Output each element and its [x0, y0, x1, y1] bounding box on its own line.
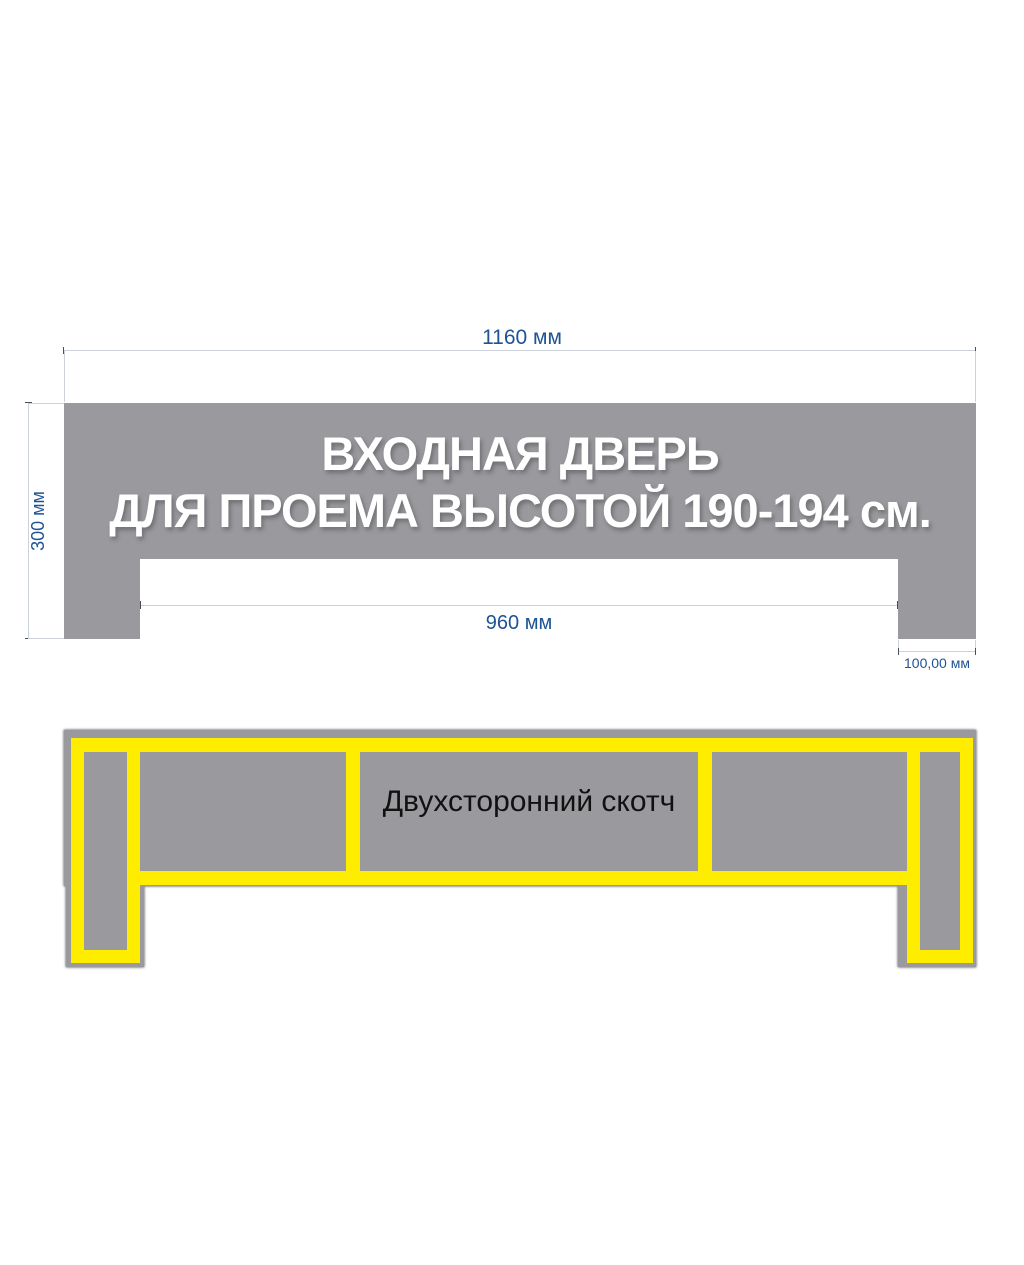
tape-strip-top-rail: [71, 738, 973, 752]
dim-label-leg-width: 100,00 мм: [877, 656, 997, 670]
dim-tick-leg-left: [898, 648, 899, 655]
panel-title-line1: ВХОДНАЯ ДВЕРЬ: [64, 427, 976, 481]
dim-line-height: [28, 403, 29, 639]
extension-line-height-bottom: [28, 638, 64, 639]
panel-right-leg: [898, 558, 976, 639]
panel-title-line2: ДЛЯ ПРОЕМА ВЫСОТОЙ 190-194 см.: [64, 484, 976, 538]
dim-tick-opening-left: [140, 601, 141, 609]
dim-tick-opening-right: [897, 601, 898, 609]
extension-line-right: [975, 351, 976, 402]
extension-line-height-top: [28, 403, 64, 404]
dim-label-total-width: 1160 мм: [372, 327, 672, 348]
tape-strip-right-inner: [907, 738, 920, 963]
dim-label-height: 300 мм: [27, 471, 49, 571]
tape-strip-right-leg-bottom: [907, 950, 973, 963]
tape-strip-divider-1: [346, 752, 360, 871]
dim-label-opening-width: 960 мм: [369, 613, 669, 633]
tape-strip-left-leg-bottom: [71, 950, 140, 963]
tape-layout-panel: [64, 730, 976, 967]
dim-line-total-width: [64, 350, 976, 351]
dim-line-opening-width: [140, 605, 898, 606]
tape-strip-divider-2: [698, 752, 712, 871]
tape-strip-right-outer: [960, 738, 973, 963]
dim-line-leg-width: [898, 651, 976, 652]
tape-strip-left-outer: [71, 738, 84, 963]
tape-strip-middle-rail: [127, 871, 920, 885]
panel-left-leg: [64, 558, 140, 639]
tape-strip-left-inner: [127, 738, 140, 963]
tape-caption: Двухсторонний скотч: [360, 785, 698, 819]
extension-line-left: [64, 351, 65, 402]
dim-tick-leg-right: [975, 648, 976, 655]
